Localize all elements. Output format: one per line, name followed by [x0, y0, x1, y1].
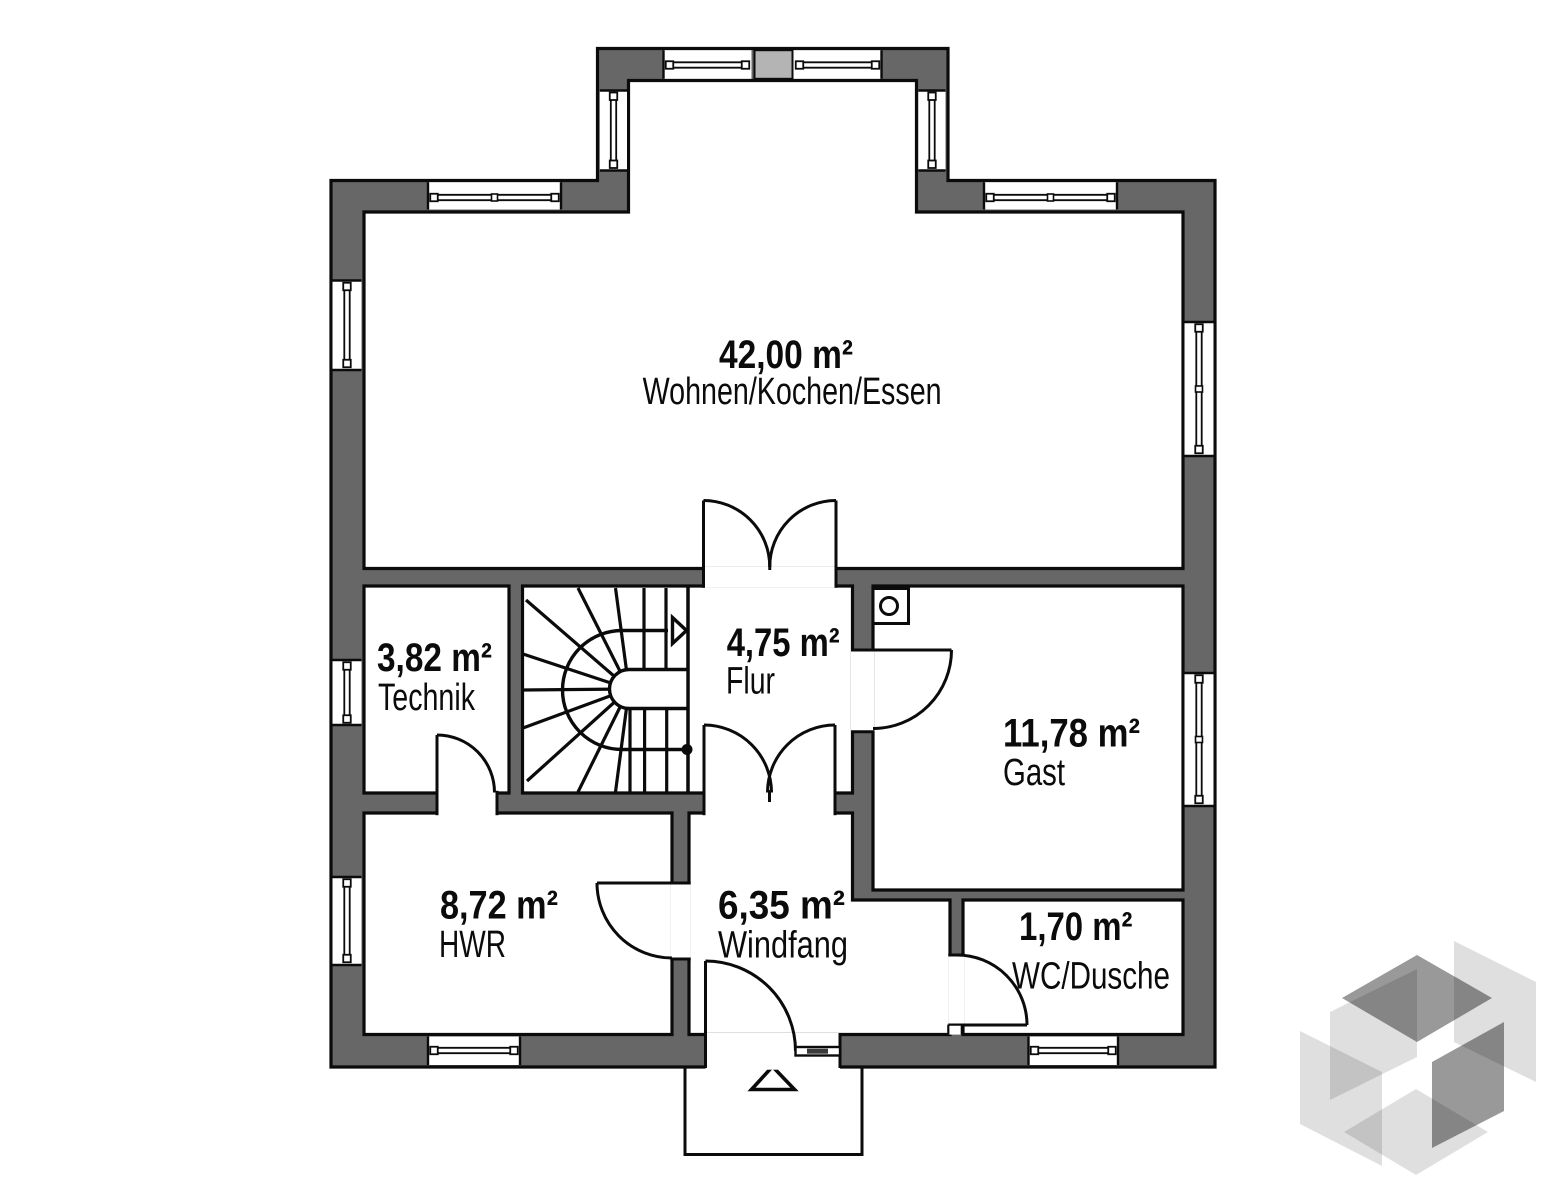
svg-text:4,75 m²: 4,75 m²: [727, 621, 840, 665]
svg-text:1,70 m²: 1,70 m²: [1019, 905, 1133, 949]
svg-text:Flur: Flur: [726, 661, 775, 703]
svg-text:3,82 m²: 3,82 m²: [377, 636, 492, 680]
svg-text:11,78 m²: 11,78 m²: [1003, 712, 1140, 756]
svg-text:WC/Dusche: WC/Dusche: [1012, 956, 1170, 998]
svg-text:Windfang: Windfang: [718, 925, 848, 967]
svg-text:HWR: HWR: [439, 924, 506, 966]
svg-text:6,35 m²: 6,35 m²: [718, 884, 845, 928]
svg-text:Technik: Technik: [378, 677, 476, 719]
svg-text:8,72 m²: 8,72 m²: [440, 884, 558, 928]
svg-text:Wohnen/Kochen/Essen: Wohnen/Kochen/Essen: [643, 371, 942, 413]
svg-text:Gast: Gast: [1003, 752, 1065, 794]
